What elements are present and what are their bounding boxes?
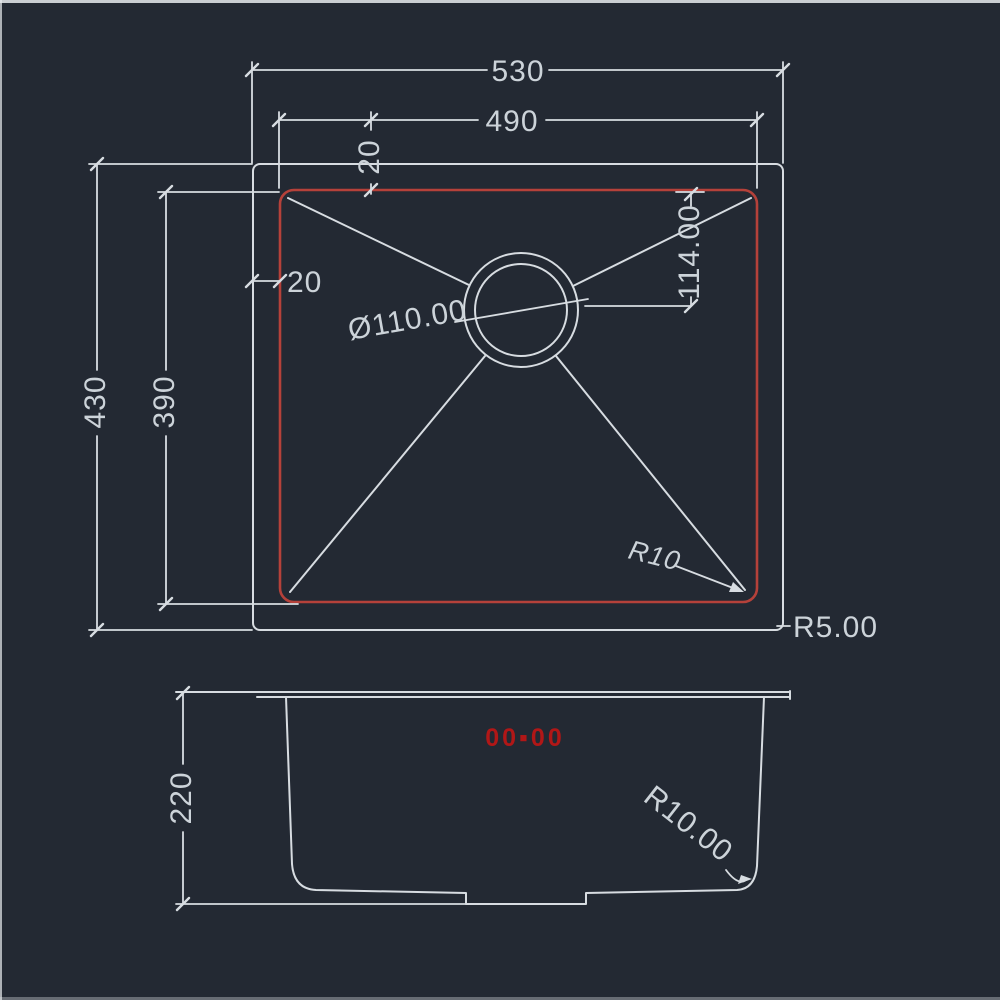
top-view: 530 490 20 20 bbox=[79, 55, 878, 644]
cad-drawing-canvas: 530 490 20 20 bbox=[0, 0, 1000, 1000]
dim-20-top-label: 20 bbox=[353, 139, 386, 174]
radius-r5-label: R5.00 bbox=[793, 611, 878, 644]
side-view: 220 R10.00 00▪00 bbox=[165, 687, 790, 910]
sink-technical-drawing: 530 490 20 20 bbox=[0, 0, 1000, 1000]
callout-bowl-corner-radius: R10 bbox=[626, 535, 744, 592]
dim-430-label: 430 bbox=[79, 375, 112, 428]
dim-bowl-height: 220 bbox=[165, 687, 198, 910]
dim-530-label: 530 bbox=[491, 55, 544, 88]
radius-r10-label: R10 bbox=[626, 535, 684, 577]
dim-bowl-depth: 390 bbox=[148, 186, 298, 610]
left-edge-line bbox=[0, 0, 2, 1000]
dim-490-label: 490 bbox=[485, 105, 538, 138]
drain-diameter-label: Ø110.00 bbox=[345, 294, 469, 347]
cross-line-bottom-left bbox=[290, 356, 485, 592]
radius-r10-00-label: R10.00 bbox=[638, 780, 739, 869]
dim-rim-top-offset: 20 bbox=[353, 112, 386, 196]
top-edge-line bbox=[0, 0, 1000, 3]
dim-rim-left-offset: 20 bbox=[246, 266, 322, 299]
cross-line-top-right bbox=[573, 198, 751, 286]
dim-20-left-label: 20 bbox=[287, 266, 322, 299]
dim-220-label: 220 bbox=[165, 771, 198, 824]
dim-bowl-width: 490 bbox=[273, 105, 763, 188]
dim-drain-offset: 114.00 bbox=[673, 188, 706, 312]
red-marking-text: 00▪00 bbox=[485, 724, 564, 752]
dim-390-label: 390 bbox=[148, 375, 181, 428]
dim-114-label: 114.00 bbox=[673, 204, 706, 300]
callout-outer-corner-radius: R5.00 bbox=[777, 611, 878, 644]
callout-bottom-corner-radius: R10.00 bbox=[638, 780, 752, 884]
